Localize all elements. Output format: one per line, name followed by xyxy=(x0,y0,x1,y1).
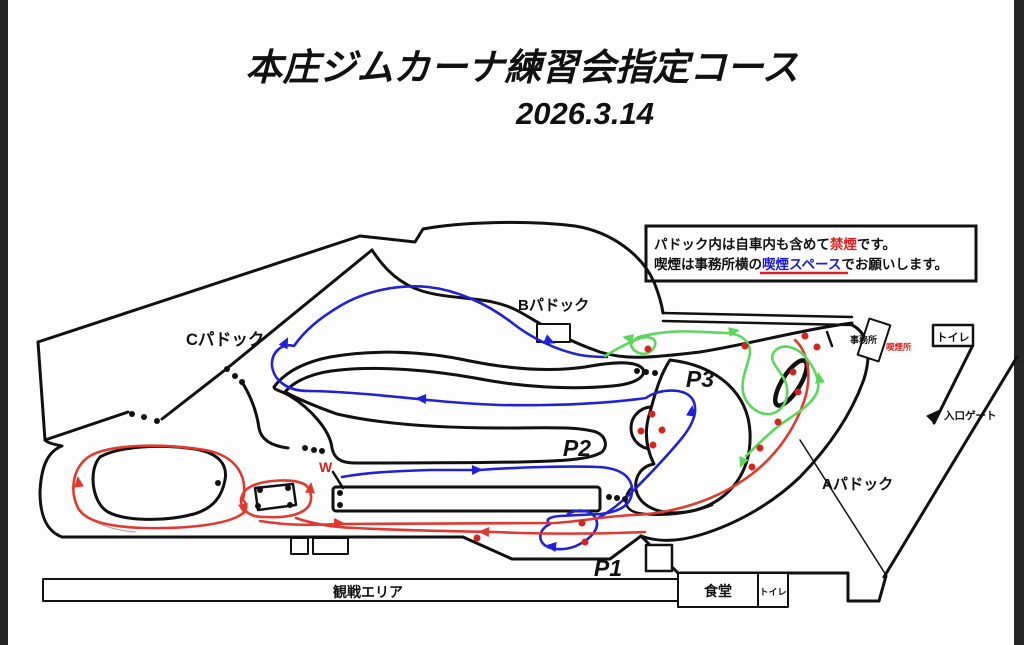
toilet-top-label: トイレ xyxy=(937,331,970,344)
cafeteria-label: 食堂 xyxy=(704,583,732,599)
p2-label: P2 xyxy=(563,435,591,461)
page-title: 本庄ジムカーナ練習会指定コース xyxy=(245,47,798,88)
finish-tick xyxy=(827,332,832,346)
w-start-label: W xyxy=(319,459,333,475)
smoking-notice-box: パドック内は自車内も含めて禁煙です。 喫煙は事務所横の喫煙スペースでお願いします… xyxy=(646,226,976,281)
toilet-bottom-label: トイレ xyxy=(759,587,786,597)
paddock-c-label: Cパドック xyxy=(186,330,264,349)
outer-fence-top xyxy=(360,222,663,313)
small-building-2 xyxy=(313,538,348,554)
island-bottom-left xyxy=(93,446,225,519)
course-map-page: 本庄ジムカーナ練習会指定コース 2026.3.14 パドック内は自車内も含めて禁… xyxy=(0,0,1024,645)
p1-building xyxy=(646,545,672,571)
b-paddock-building xyxy=(537,324,570,342)
island-banana xyxy=(770,356,813,410)
spectator-area-label: 観戦エリア xyxy=(333,584,403,600)
a-paddock-inner-line xyxy=(800,440,886,575)
course-map: 本庄ジムカーナ練習会指定コース 2026.3.14 パドック内は自車内も含めて禁… xyxy=(0,0,1024,645)
notice-line1: パドック内は自車内も含めて禁煙です。 xyxy=(654,236,896,252)
office-label: 事務所 xyxy=(850,334,877,345)
paddock-b-label: Bパドック xyxy=(518,297,589,314)
c-paddock-band-left-cap xyxy=(38,342,45,440)
entrance-gate-label: 入口ゲート xyxy=(944,409,997,422)
event-date: 2026.3.14 xyxy=(515,96,654,131)
small-building-1 xyxy=(291,538,308,554)
notice-line2: 喫煙は事務所横の喫煙スペースでお願いします。 xyxy=(654,256,948,272)
outer-fence-double-line xyxy=(663,313,852,325)
p1-label: P1 xyxy=(594,555,622,581)
p3-label: P3 xyxy=(686,366,714,392)
smoking-area-label: 喫煙所 xyxy=(886,342,912,352)
paddock-a-label: Aパドック xyxy=(822,476,893,493)
start-rectangle xyxy=(333,487,600,511)
